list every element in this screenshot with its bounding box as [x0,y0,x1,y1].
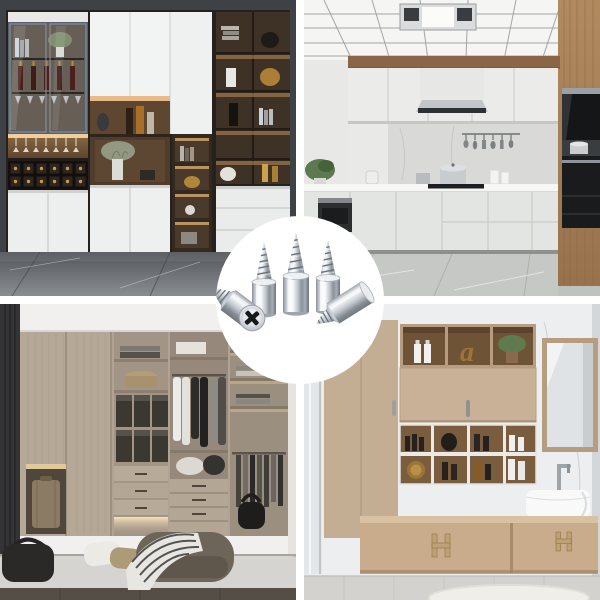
shelf-peg-upright-middle [283,232,309,316]
framed-mirror [542,338,598,452]
glass-wine-cabinet [8,12,88,134]
dark-curtain [0,304,20,572]
range-hood [416,68,488,113]
ceiling-vent-light [400,4,476,30]
middle-shelf-column [114,332,168,536]
product-inset-circle [216,216,384,384]
floating-vanity [360,516,598,574]
decor-letter: a [460,337,474,368]
upper-cabinets [348,56,560,124]
lit-stemware-niche [8,134,88,161]
wine-bottle-rack [8,161,88,190]
countertop [304,184,558,192]
flip-up-door [400,368,536,422]
tall-oak-cabinet-column [558,0,600,296]
ceiling-grid [304,0,600,60]
center-drawers [170,479,228,536]
hanging-clothes-column [170,332,228,536]
upper-cubby-unit: a [400,324,536,368]
lit-display-tower [172,134,212,252]
suitcase-niche [26,464,66,534]
right-open-shelving [216,12,290,184]
steel-pot [440,163,466,184]
cooktop [428,184,484,189]
built-in-black-ovens [562,88,600,228]
closed-wardrobe-doors [20,332,112,536]
product-collage: a [0,0,600,600]
bathroom-floor [304,576,600,600]
bar-shelf [90,96,170,137]
open-grid-shelf [400,425,536,484]
shelf-peg-screws [216,216,384,384]
middle-lower-doors [90,185,170,252]
left-lower-doors [8,190,88,252]
drawer-stack [114,466,168,515]
vessel-sink [526,490,590,518]
flower-vase-shelf [90,137,170,185]
floor-bag [2,539,54,582]
